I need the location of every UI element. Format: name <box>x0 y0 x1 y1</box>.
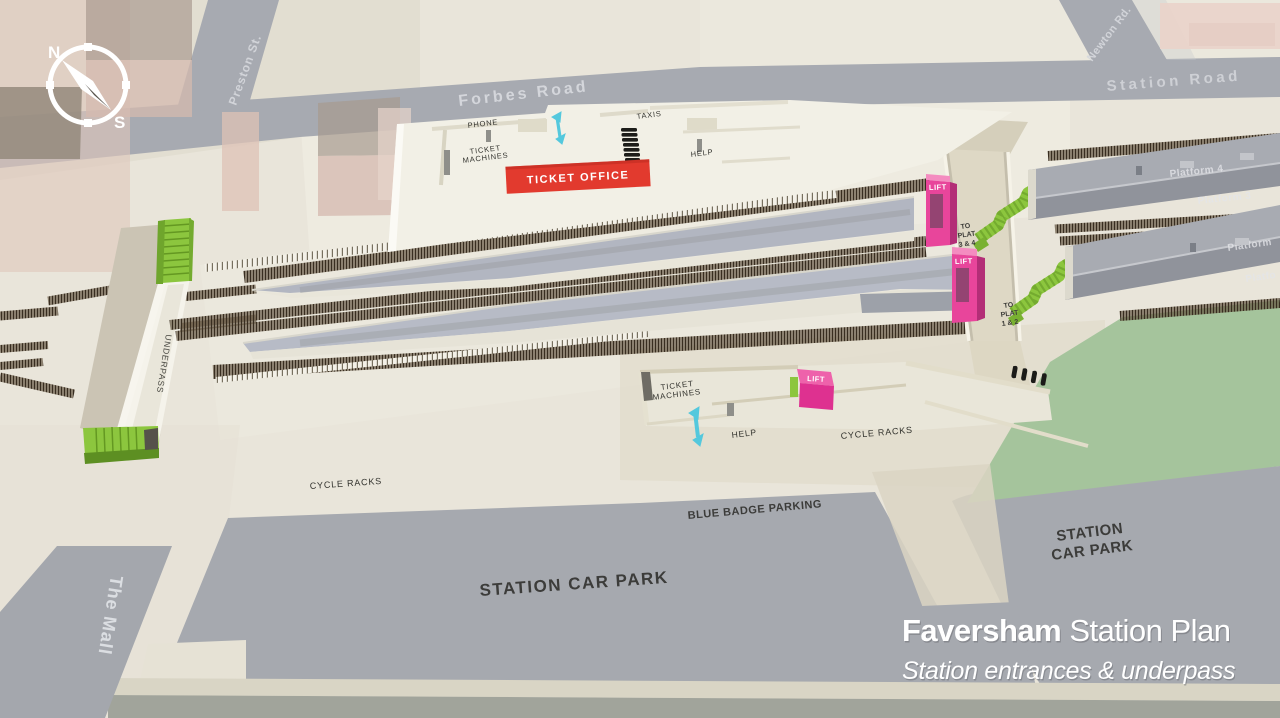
svg-text:LIFT: LIFT <box>807 374 825 384</box>
svg-text:N: N <box>48 43 60 62</box>
svg-text:LIFT: LIFT <box>929 182 947 192</box>
svg-text:LIFT: LIFT <box>955 256 973 266</box>
svg-text:TO: TO <box>960 223 971 231</box>
svg-text:S: S <box>114 113 125 132</box>
svg-text:TO: TO <box>1003 302 1014 310</box>
svg-text:Faversham Station Plan: Faversham Station Plan <box>902 613 1231 648</box>
svg-text:Station entrances & underpass: Station entrances & underpass <box>902 657 1235 685</box>
